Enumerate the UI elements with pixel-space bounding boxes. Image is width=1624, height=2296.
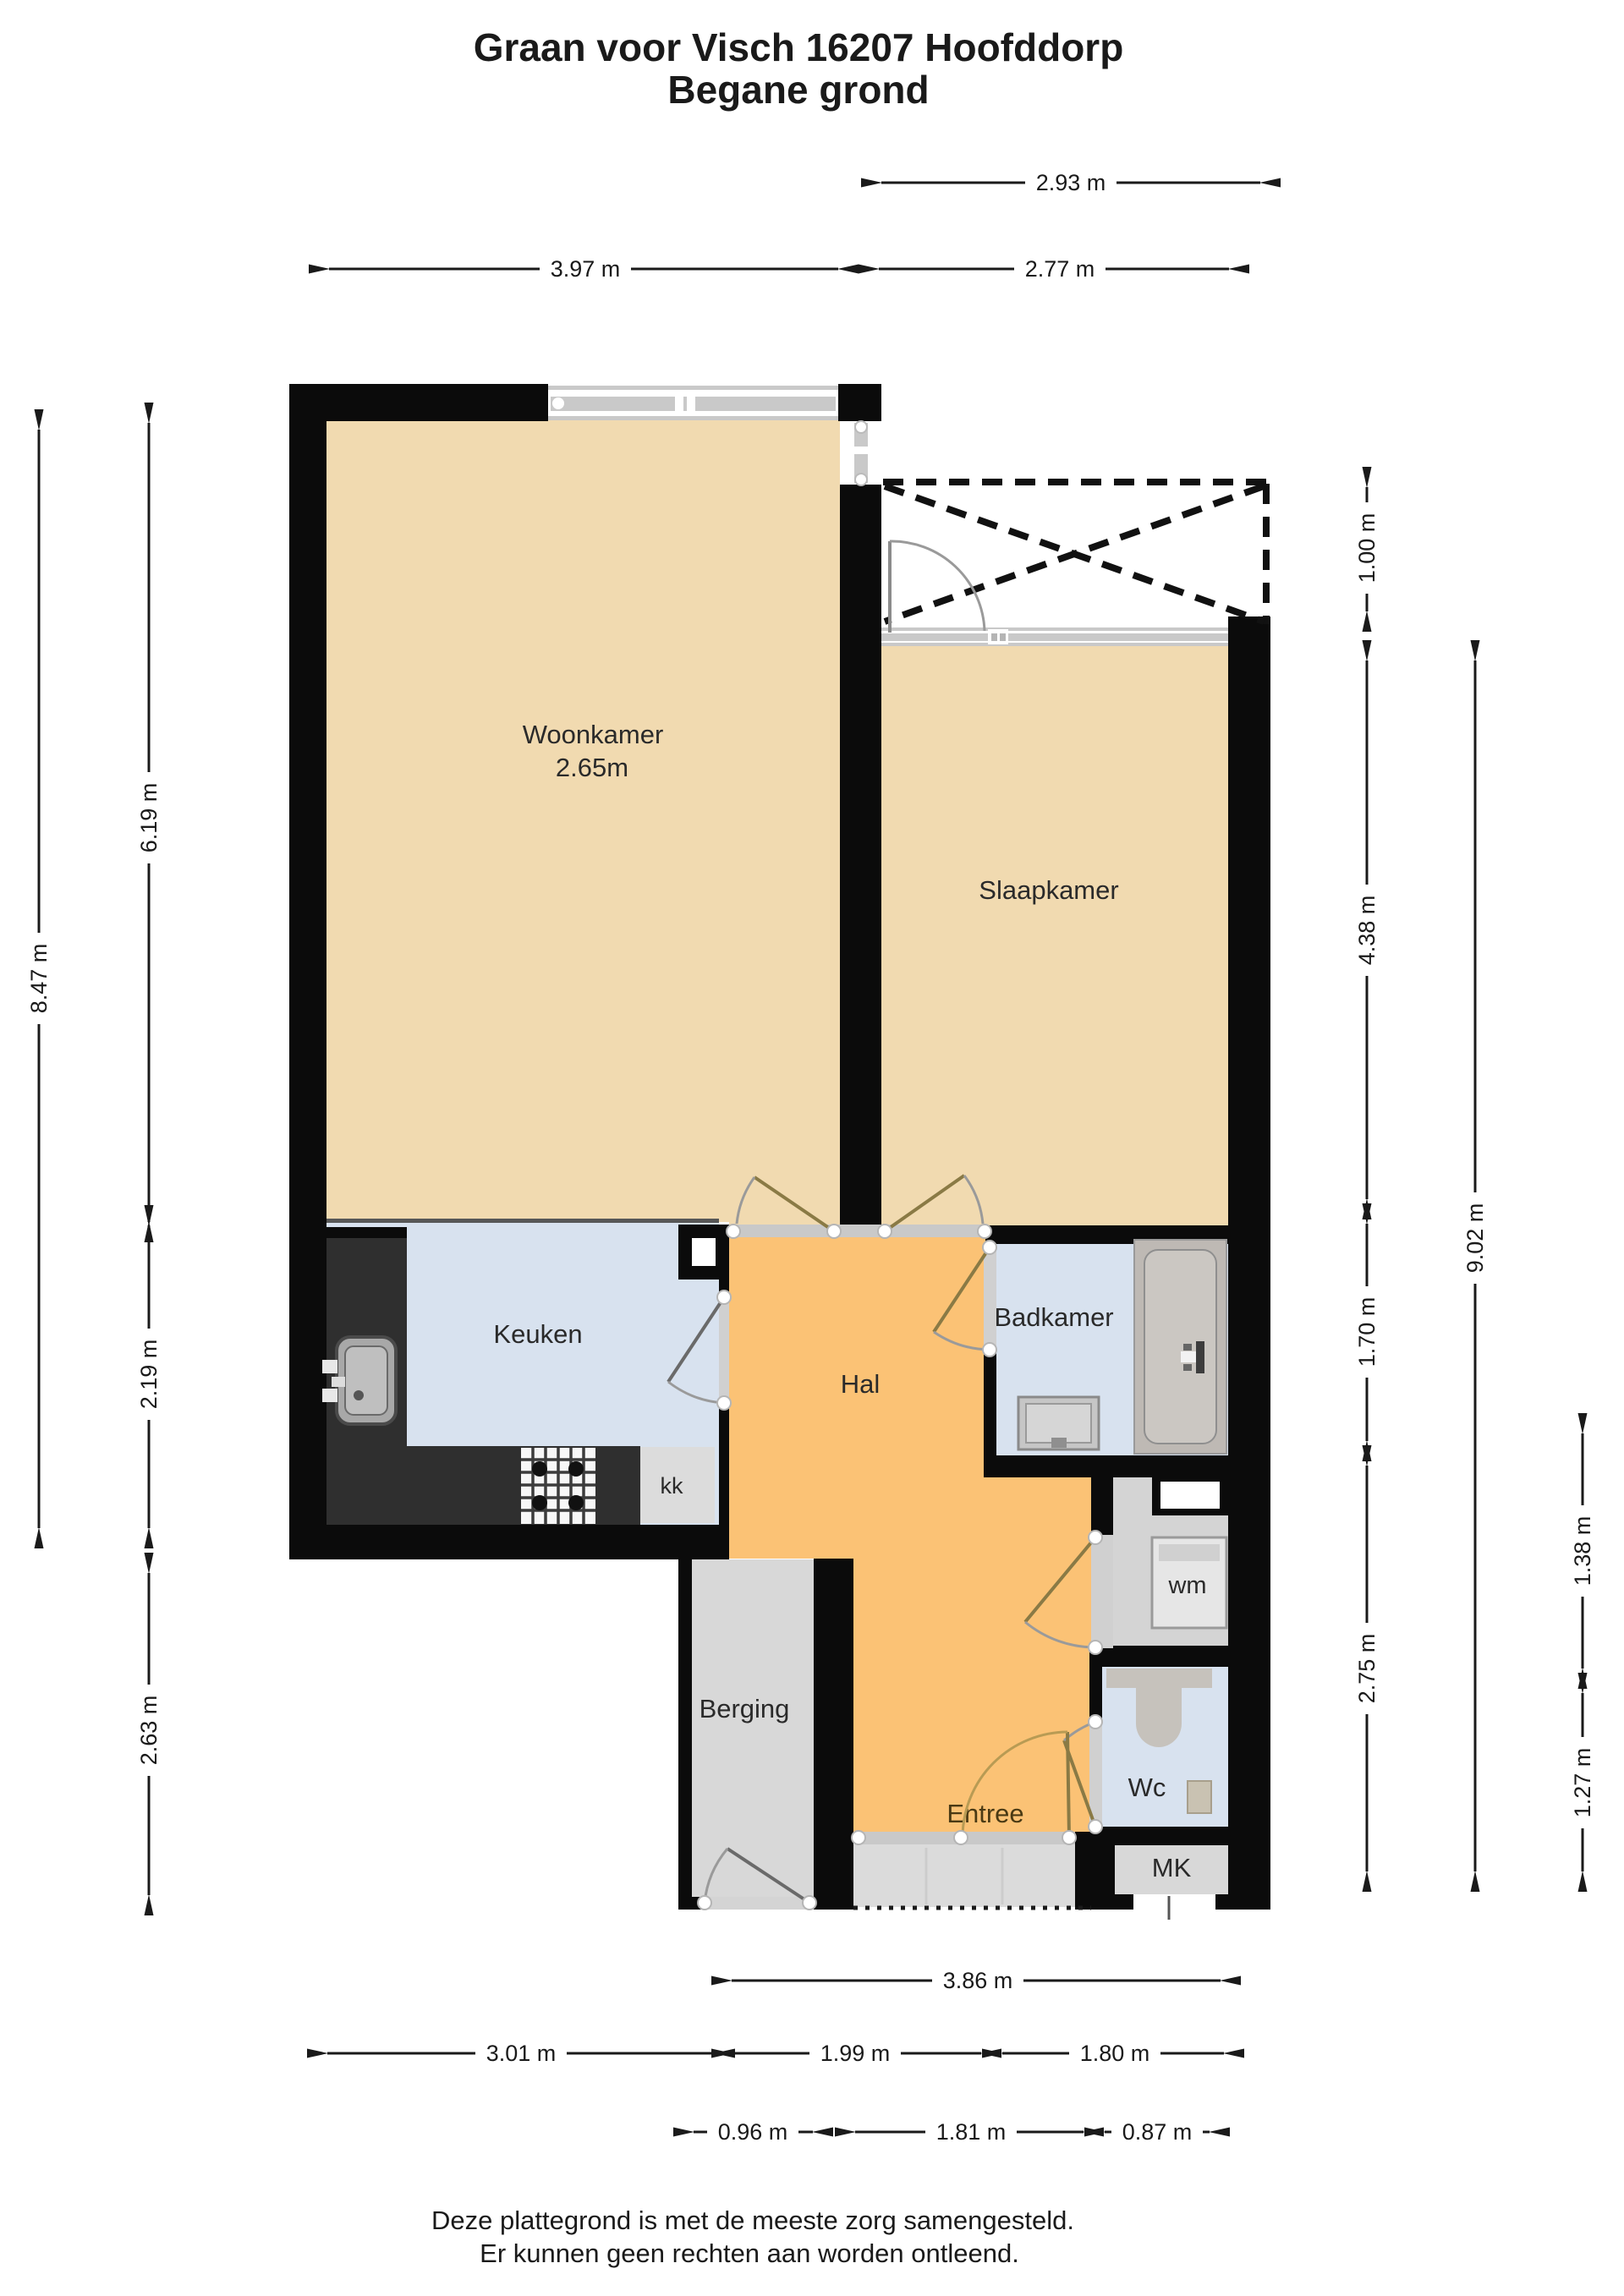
svg-text:Begane grond: Begane grond [667,68,929,112]
svg-text:Er kunnen geen rechten aan wor: Er kunnen geen rechten aan worden ontlee… [480,2238,1019,2268]
svg-text:Hal: Hal [841,1369,881,1399]
svg-text:Deze plattegrond is met de mee: Deze plattegrond is met de meeste zorg s… [431,2206,1074,2235]
svg-text:Graan voor Visch 16207 Hoofddo: Graan voor Visch 16207 Hoofddorp [474,25,1124,69]
svg-text:2.77 m: 2.77 m [1025,256,1095,282]
svg-text:4.38 m: 4.38 m [1354,896,1380,966]
svg-text:2.19 m: 2.19 m [136,1340,162,1410]
svg-text:9.02 m: 9.02 m [1462,1203,1488,1274]
svg-text:1.80 m: 1.80 m [1080,2041,1150,2066]
svg-text:Berging: Berging [700,1694,790,1723]
svg-text:2.75 m: 2.75 m [1354,1634,1380,1704]
svg-text:2.63 m: 2.63 m [136,1696,162,1766]
svg-text:3.97 m: 3.97 m [551,256,621,282]
svg-text:2.93 m: 2.93 m [1036,170,1106,195]
svg-text:0.96 m: 0.96 m [718,2119,788,2145]
svg-text:Wc: Wc [1128,1773,1166,1802]
svg-text:1.81 m: 1.81 m [936,2119,1007,2145]
svg-text:1.27 m: 1.27 m [1570,1748,1595,1818]
svg-text:1.99 m: 1.99 m [820,2041,891,2066]
svg-text:Badkamer: Badkamer [994,1302,1113,1332]
svg-text:Woonkamer: Woonkamer [523,720,664,749]
svg-text:3.86 m: 3.86 m [943,1968,1013,1993]
svg-text:Keuken: Keuken [493,1319,582,1349]
svg-text:Entree: Entree [946,1799,1023,1828]
svg-text:2.65m: 2.65m [556,753,628,782]
svg-text:kk: kk [661,1473,684,1499]
svg-text:wm: wm [1167,1572,1206,1599]
svg-text:1.38 m: 1.38 m [1570,1516,1595,1586]
svg-text:Slaapkamer: Slaapkamer [979,875,1118,905]
svg-text:0.87 m: 0.87 m [1122,2119,1193,2145]
svg-text:1.70 m: 1.70 m [1354,1297,1380,1367]
svg-text:6.19 m: 6.19 m [136,783,162,853]
svg-text:3.01 m: 3.01 m [486,2041,557,2066]
svg-text:MK: MK [1152,1853,1192,1882]
svg-text:1.00 m: 1.00 m [1354,513,1380,584]
svg-text:8.47 m: 8.47 m [26,944,52,1014]
